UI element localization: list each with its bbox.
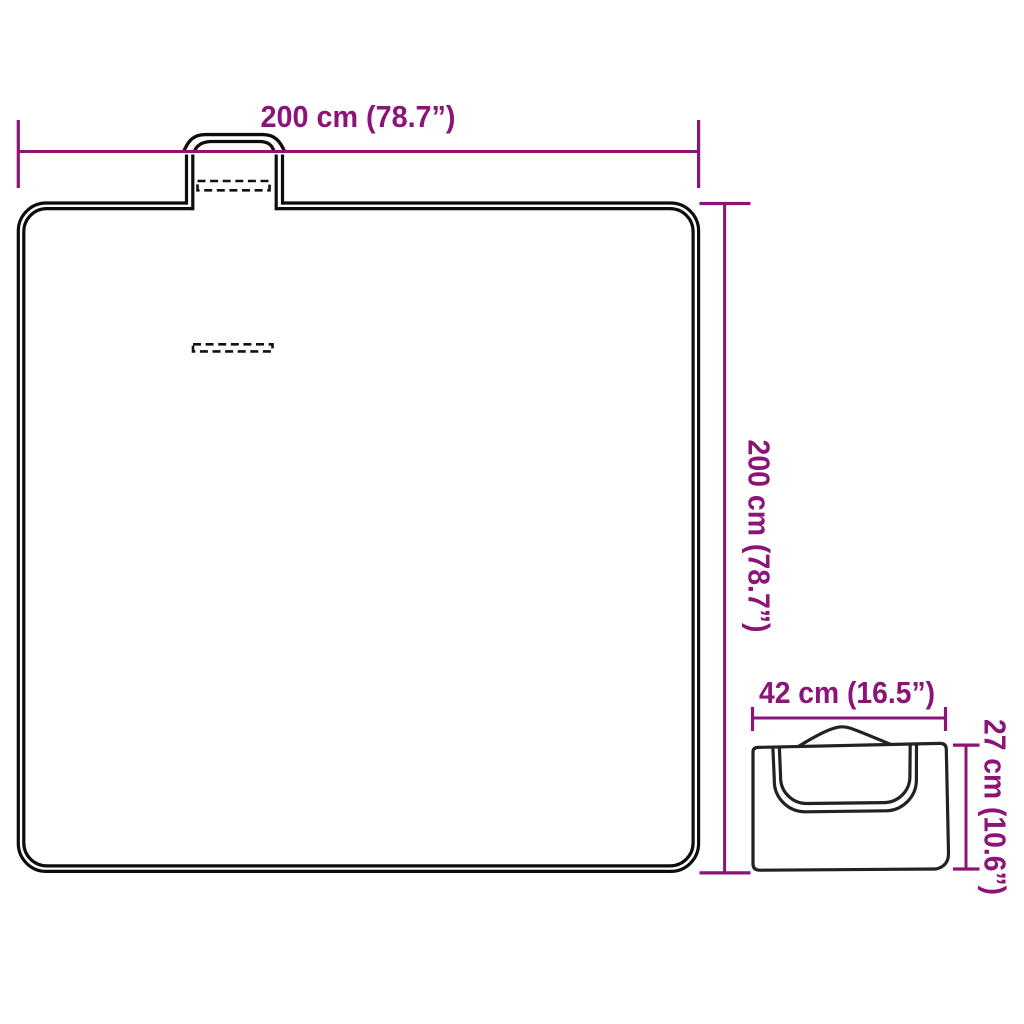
svg-text:200 cm (78.7”): 200 cm (78.7”) [261, 99, 456, 134]
svg-text:200 cm (78.7”): 200 cm (78.7”) [742, 440, 777, 633]
svg-text:27 cm (10.6”): 27 cm (10.6”) [978, 719, 1013, 895]
svg-text:42 cm (16.5”): 42 cm (16.5”) [759, 675, 935, 710]
